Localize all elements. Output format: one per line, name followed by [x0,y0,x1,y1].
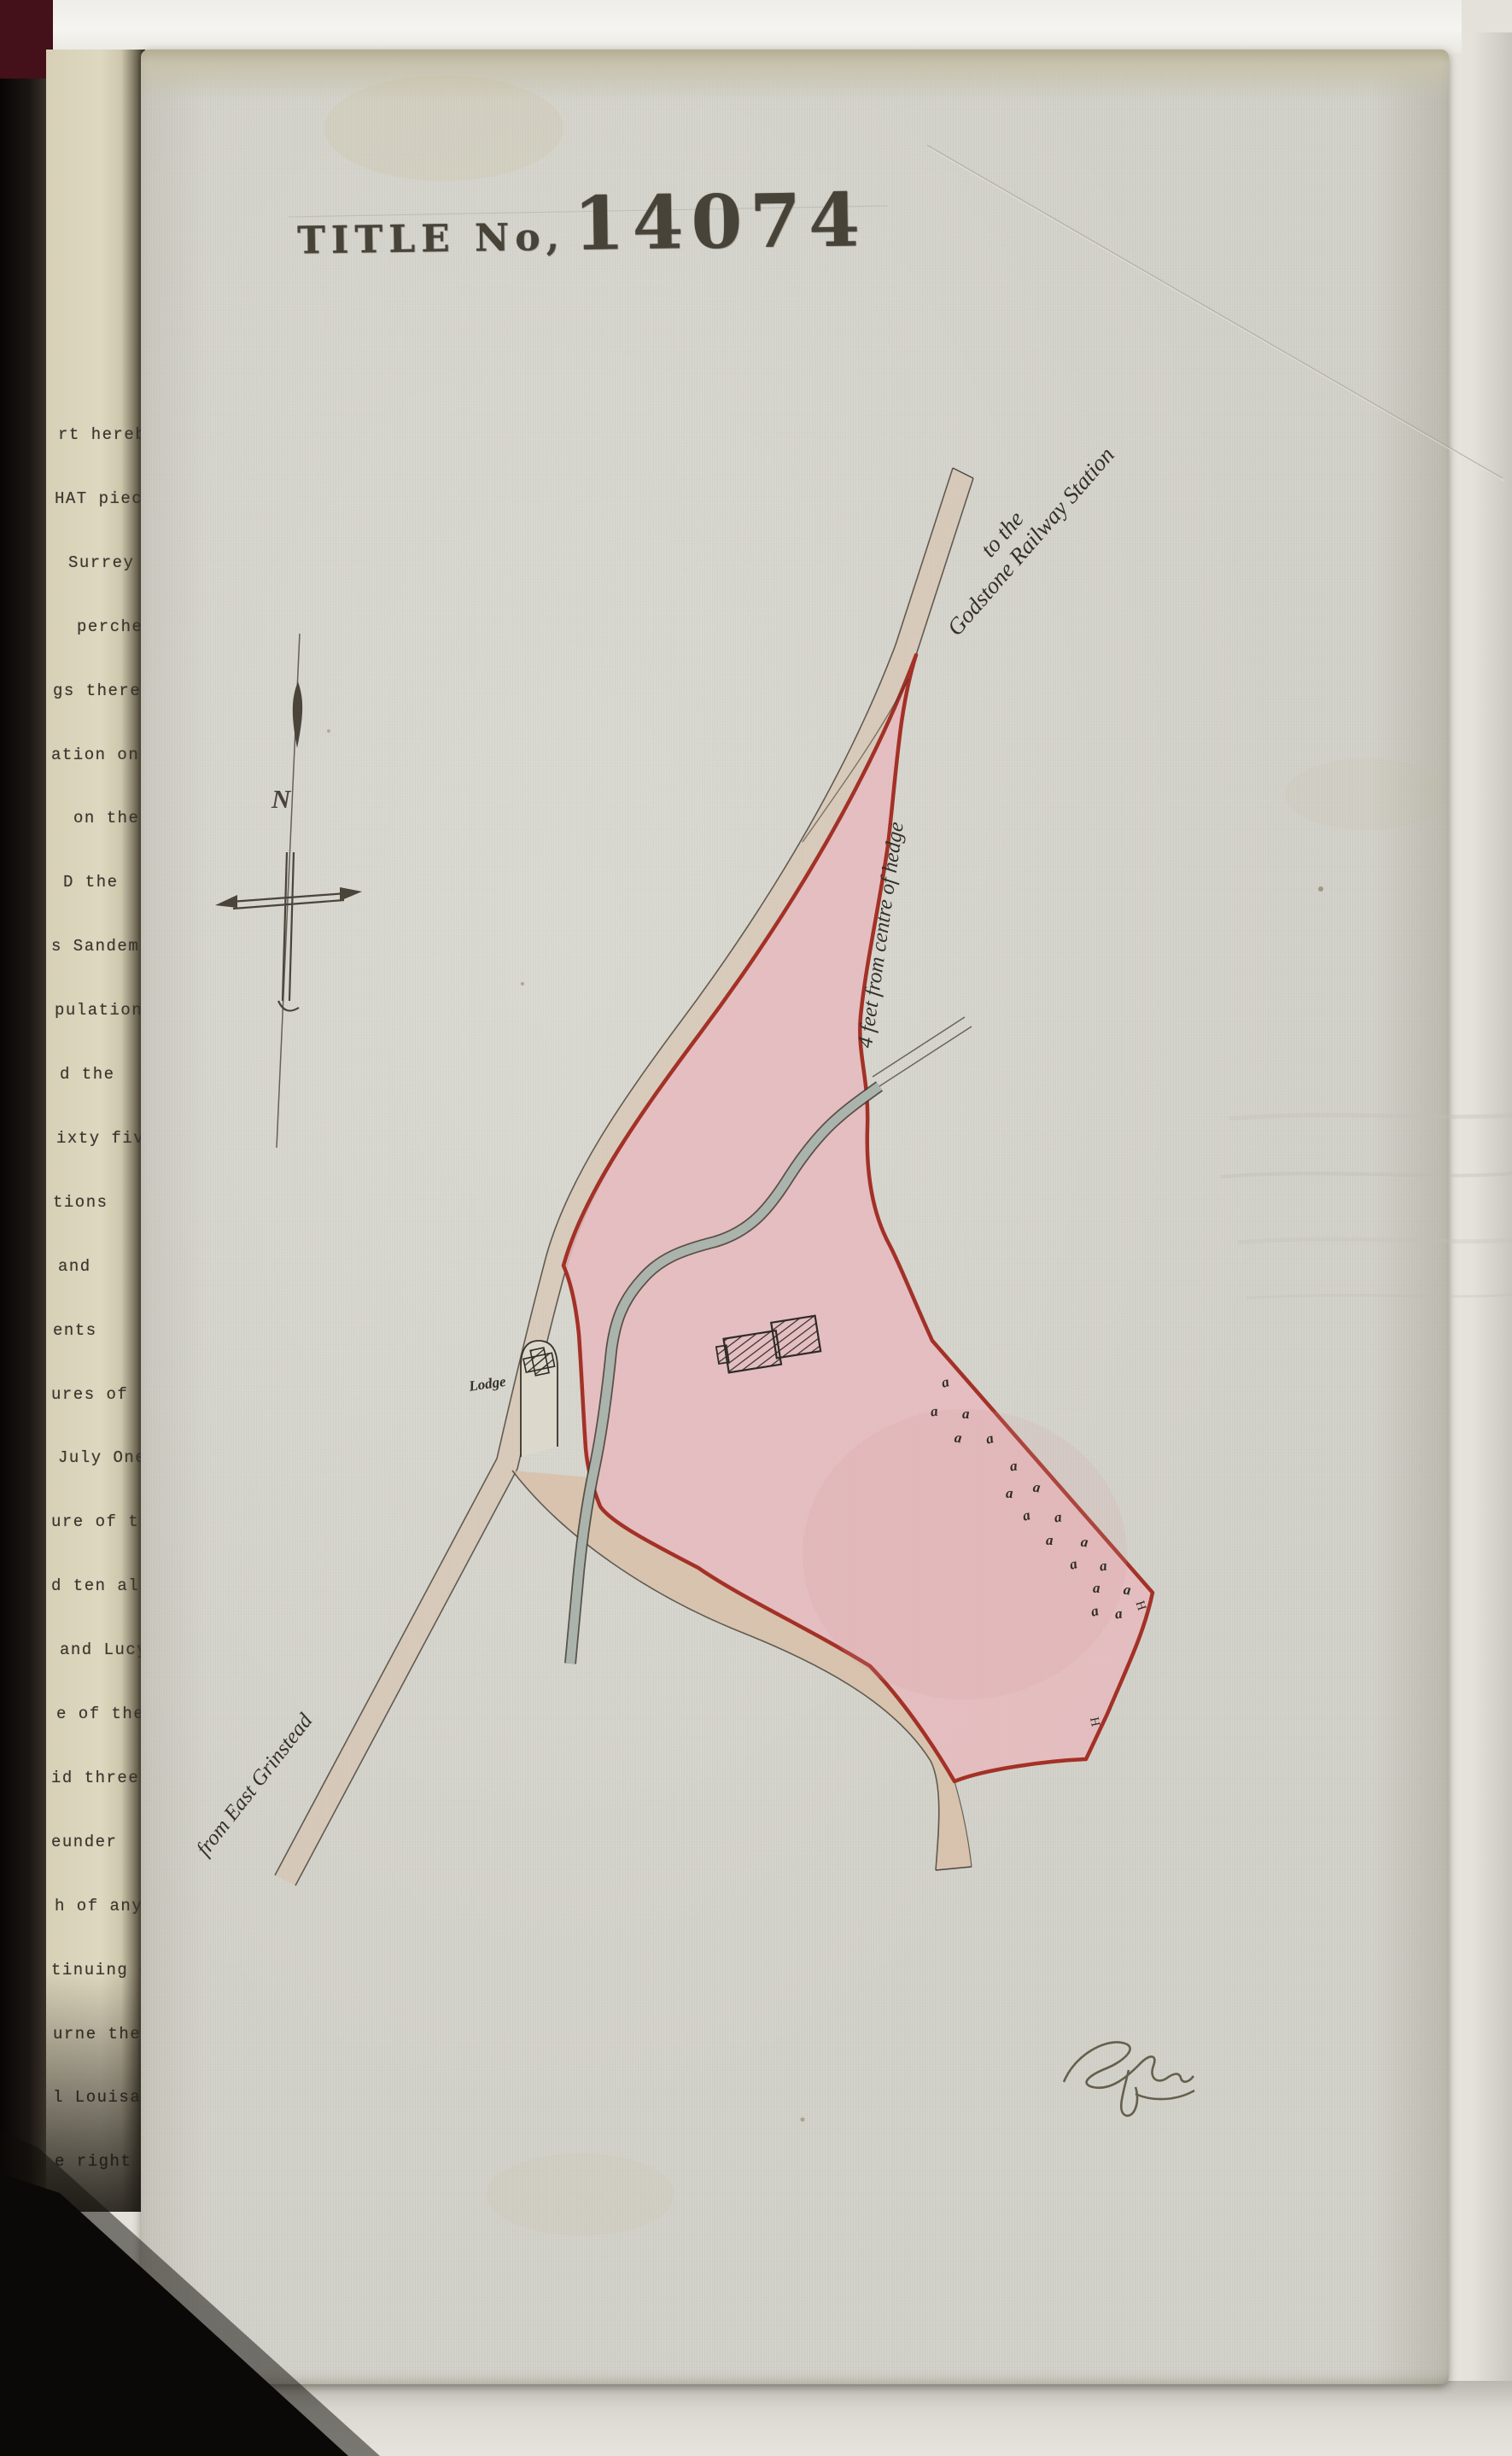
typed-fragment: pulation [55,1001,143,1020]
typed-fragment: D the [63,873,119,892]
typed-fragment: ixty fiv [56,1129,144,1148]
tree-mark: a [1046,1532,1054,1549]
typed-fragment: gs there [53,681,141,700]
book-cover-corner [0,0,53,79]
title-stamp: TITLE No, 14074 [296,177,867,271]
linen-map-sheet [141,50,1449,2384]
typed-fragment: and Lucy [60,1640,145,1659]
typed-fragment: ents [53,1321,97,1340]
typed-fragment: HAT piece [55,489,145,508]
typed-fragment: d the [60,1065,115,1084]
tree-mark: a [930,1403,939,1421]
typed-fragment: Surrey [68,553,134,572]
typed-fragment: ures of [51,1385,128,1404]
tree-mark: a [1114,1605,1124,1623]
typed-fragment: rt hereby [58,425,145,444]
title-number: 14074 [573,177,868,267]
typed-fragment: eunder [51,1833,117,1851]
tree-mark: a [1099,1558,1108,1576]
typed-fragment: ure of th [51,1512,145,1531]
typed-fragment: and [58,1257,91,1276]
typed-fragment: perches [77,617,145,636]
book-gutter-shadow [0,0,50,2456]
backing-page-top [44,0,1462,53]
title-label: TITLE No, [297,215,565,262]
typed-fragment: e of the [56,1705,144,1723]
typed-fragment: ation on [51,746,139,764]
typed-fragment: d ten all [51,1576,145,1595]
tree-mark: a [954,1430,963,1447]
typed-fragment: s Sandem [51,937,139,956]
tree-mark: a [1093,1580,1100,1597]
typed-fragment: tions [53,1193,108,1212]
compass-north-label: N [271,784,290,815]
tree-mark: a [1080,1534,1089,1552]
typed-fragment: on the [73,809,139,827]
typed-deed-page-edge: rt herebyHAT pieceSurreyperchesgs therea… [46,50,145,2212]
typed-fragment: July One [58,1448,145,1467]
tree-mark: a [1032,1479,1042,1497]
typed-fragment: h of any [55,1897,143,1915]
tree-mark: a [962,1406,970,1423]
tree-mark: a [1006,1485,1013,1502]
tree-mark: a [1054,1509,1063,1527]
tree-mark: a [1123,1582,1132,1599]
typed-fragment: id three [51,1769,139,1787]
land-registry-title-plan: rt herebyHAT pieceSurreyperchesgs therea… [0,0,1512,2456]
tree-mark: a [1009,1458,1019,1476]
